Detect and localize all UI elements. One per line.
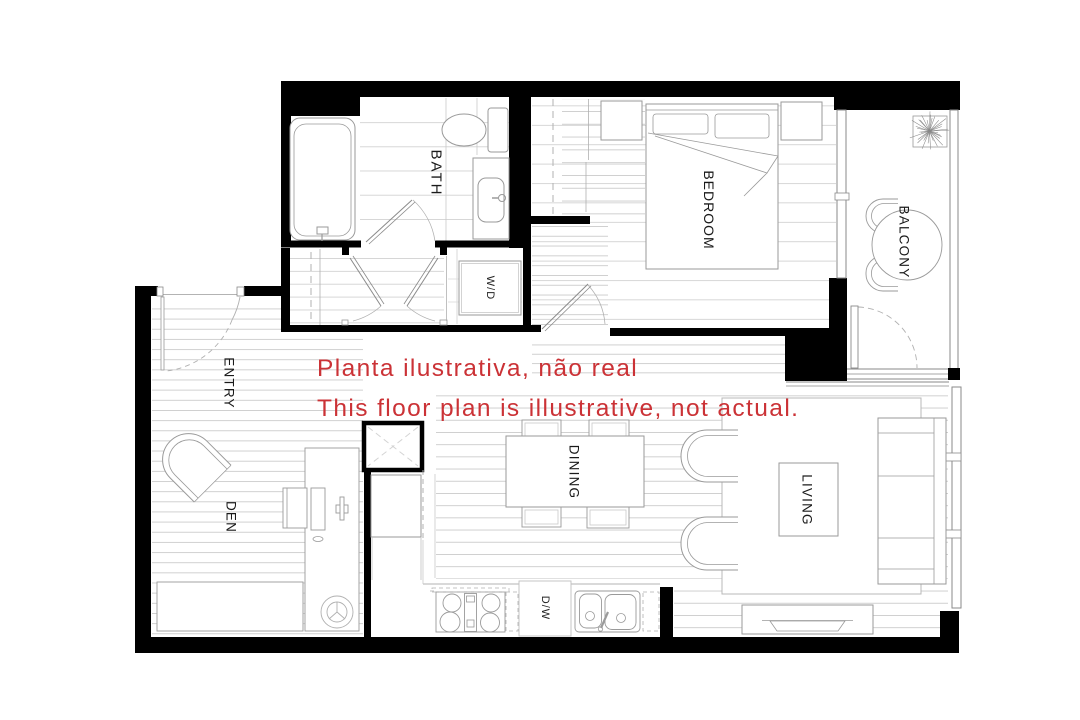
svg-text:BALCONY: BALCONY — [897, 206, 912, 279]
svg-text:DEN: DEN — [224, 501, 239, 533]
svg-text:LIVING: LIVING — [800, 474, 815, 525]
svg-text:DINING: DINING — [567, 445, 582, 499]
svg-text:W/D: W/D — [484, 276, 496, 300]
svg-text:ENTRY: ENTRY — [222, 357, 237, 409]
svg-text:D/W: D/W — [539, 596, 551, 620]
svg-text:BEDROOM: BEDROOM — [701, 170, 717, 249]
svg-text:BATH: BATH — [428, 150, 445, 197]
